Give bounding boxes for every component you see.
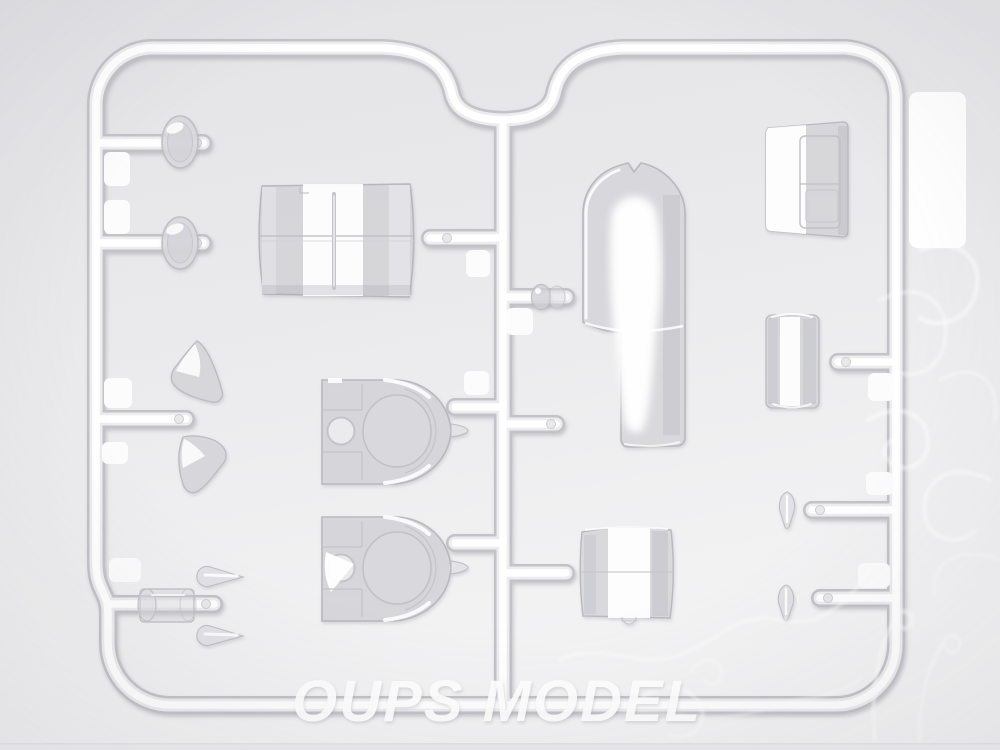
table-edge-line — [0, 743, 1000, 745]
sprue-photo-stage: OUPS MODEL — [0, 0, 1000, 750]
table-edge-strip — [0, 745, 1000, 750]
sprue-photo: OUPS MODEL — [0, 0, 1000, 750]
vignette-overlay — [0, 0, 1000, 750]
